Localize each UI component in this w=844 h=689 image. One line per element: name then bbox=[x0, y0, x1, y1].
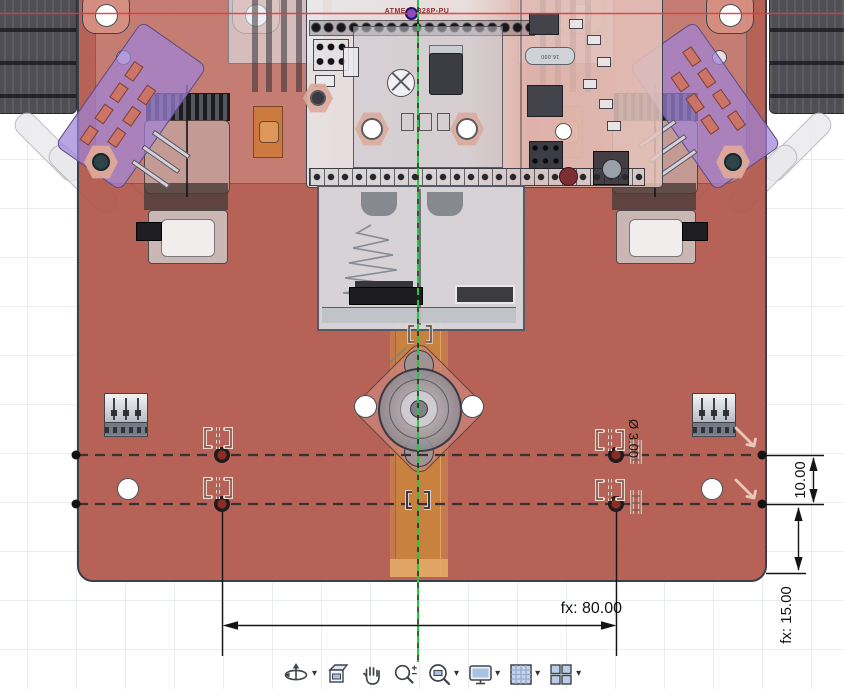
dimension-text-10[interactable]: 10.00 bbox=[792, 457, 809, 503]
dim-arrow bbox=[809, 457, 817, 471]
fit-button[interactable]: ▾ bbox=[428, 663, 459, 686]
slot bbox=[700, 114, 719, 135]
mount-tab bbox=[82, 0, 130, 34]
standoff-bore bbox=[92, 153, 110, 171]
resistor bbox=[343, 47, 359, 77]
tape-strip-end bbox=[390, 559, 448, 577]
motor-connector bbox=[682, 222, 708, 241]
pan-button[interactable] bbox=[360, 663, 384, 686]
terminal-pin bbox=[113, 398, 115, 420]
qfp-chip bbox=[527, 85, 563, 117]
dimension-text-15[interactable]: fx: 15.00 bbox=[778, 577, 795, 653]
slot bbox=[401, 113, 414, 131]
gearbox-cover bbox=[161, 219, 215, 257]
grid-icon bbox=[509, 663, 533, 686]
capacitor bbox=[587, 35, 601, 45]
tab-hole bbox=[95, 4, 118, 27]
dimension-text-diameter[interactable]: Ø 3.00 bbox=[626, 419, 641, 491]
right-wheel[interactable] bbox=[769, 0, 844, 114]
dim-arrow bbox=[223, 621, 239, 629]
tact-button bbox=[602, 159, 622, 179]
slot bbox=[137, 84, 156, 105]
capacitor bbox=[569, 19, 583, 29]
terminal-base bbox=[105, 422, 147, 435]
dim-arrow bbox=[794, 507, 802, 521]
terminal-pad bbox=[111, 410, 117, 416]
header-2x4 bbox=[529, 141, 563, 169]
slot bbox=[697, 67, 716, 88]
navigation-toolbar: ▾ ▾ bbox=[283, 660, 581, 688]
via-hole bbox=[559, 167, 578, 186]
look-at-button[interactable] bbox=[326, 663, 351, 685]
dropdown-arrow-icon[interactable]: ▾ bbox=[535, 669, 540, 679]
slot bbox=[727, 110, 746, 131]
motor-centerline bbox=[186, 85, 188, 197]
crystal-oscillator: 16.000 bbox=[525, 47, 575, 65]
terminal-base bbox=[693, 422, 735, 435]
gearbox-cover bbox=[629, 219, 683, 257]
look-at-icon bbox=[326, 663, 351, 685]
slot bbox=[682, 46, 701, 67]
viewports-button[interactable]: ▾ bbox=[549, 663, 581, 686]
magnifier-plus-minus-icon bbox=[393, 663, 419, 686]
standoff-bore bbox=[724, 153, 742, 171]
capacitor bbox=[597, 57, 611, 67]
dropdown-arrow-icon[interactable]: ▾ bbox=[495, 669, 500, 679]
battery-contact bbox=[455, 285, 515, 304]
slot bbox=[685, 93, 704, 114]
capacitor bbox=[607, 121, 621, 131]
tab-hole bbox=[719, 4, 742, 27]
battery-contact bbox=[349, 287, 423, 305]
shaft bbox=[252, 0, 258, 92]
shaft bbox=[281, 0, 287, 92]
terminal-pad bbox=[699, 410, 705, 416]
slot bbox=[109, 82, 128, 103]
slot bbox=[107, 127, 126, 148]
terminal-pad bbox=[135, 410, 141, 416]
motor-connector bbox=[136, 222, 162, 241]
potentiometer bbox=[387, 69, 415, 97]
terminal-pad bbox=[711, 410, 717, 416]
slot bbox=[124, 61, 143, 82]
corner-bolt bbox=[303, 83, 333, 113]
fit-view-icon bbox=[428, 663, 452, 686]
plate-hole bbox=[701, 478, 723, 500]
pad-nut bbox=[259, 121, 279, 143]
dim-arrow bbox=[601, 621, 617, 629]
standoff-pad bbox=[253, 106, 283, 158]
bolt-head bbox=[310, 90, 326, 106]
capacitor bbox=[599, 99, 613, 109]
terminal-pad bbox=[123, 410, 129, 416]
dim-arrow bbox=[794, 557, 802, 571]
viewports-icon bbox=[549, 663, 574, 686]
driver-module bbox=[353, 26, 503, 168]
mount-tab bbox=[706, 0, 754, 34]
inductor bbox=[429, 53, 463, 95]
battery-rail bbox=[322, 307, 516, 323]
soic-chip bbox=[529, 13, 559, 35]
slot bbox=[419, 113, 432, 131]
slot bbox=[79, 125, 98, 146]
nut-bore bbox=[361, 118, 383, 140]
caster-hub bbox=[410, 400, 428, 418]
slot bbox=[122, 106, 141, 127]
left-wheel[interactable] bbox=[0, 0, 77, 114]
fusion-sketch-viewport[interactable]: 16.000 ATMEGA328P-PU bbox=[0, 0, 844, 689]
orbit-icon bbox=[283, 662, 310, 686]
battery-notch bbox=[361, 192, 397, 216]
slot bbox=[94, 103, 113, 124]
battery-holder[interactable] bbox=[317, 185, 525, 331]
pan-hand-icon bbox=[360, 663, 384, 686]
display-settings-button[interactable]: ▾ bbox=[468, 663, 500, 686]
slot bbox=[712, 89, 731, 110]
terminal-pin bbox=[713, 398, 715, 420]
slot bbox=[437, 113, 450, 131]
controller-pcb[interactable]: 16.000 bbox=[306, 0, 663, 188]
terminal-pin bbox=[125, 398, 127, 420]
mount-hole bbox=[555, 123, 572, 140]
dimension-15[interactable] bbox=[766, 508, 806, 574]
monitor-icon bbox=[468, 663, 493, 686]
dim-arrow bbox=[809, 489, 817, 503]
screw-terminal bbox=[104, 393, 148, 437]
caster-mount-hole bbox=[354, 395, 377, 418]
terminal-pin bbox=[137, 398, 139, 420]
battery-notch bbox=[427, 192, 463, 216]
caster-mount-hole bbox=[461, 395, 484, 418]
orbit-button[interactable]: ▾ bbox=[283, 662, 317, 686]
terminal-pad bbox=[723, 410, 729, 416]
slot bbox=[671, 71, 690, 92]
shaft bbox=[296, 0, 302, 92]
terminal-pin bbox=[701, 398, 703, 420]
grids-snaps-button[interactable]: ▾ bbox=[509, 663, 540, 686]
tact-switch bbox=[593, 151, 629, 185]
shaft bbox=[266, 0, 272, 92]
dropdown-arrow-icon[interactable]: ▾ bbox=[454, 669, 459, 679]
zoom-button[interactable] bbox=[393, 663, 419, 686]
dropdown-arrow-icon[interactable]: ▾ bbox=[576, 669, 581, 679]
capacitor bbox=[583, 79, 597, 89]
nut-bore bbox=[456, 118, 478, 140]
dropdown-arrow-icon[interactable]: ▾ bbox=[312, 669, 317, 679]
plate-hole bbox=[117, 478, 139, 500]
sketch-origin-point[interactable] bbox=[405, 7, 418, 20]
dimension-text-80[interactable]: fx: 80.00 bbox=[498, 600, 622, 618]
terminal-pin bbox=[725, 398, 727, 420]
screw-terminal bbox=[692, 393, 736, 437]
